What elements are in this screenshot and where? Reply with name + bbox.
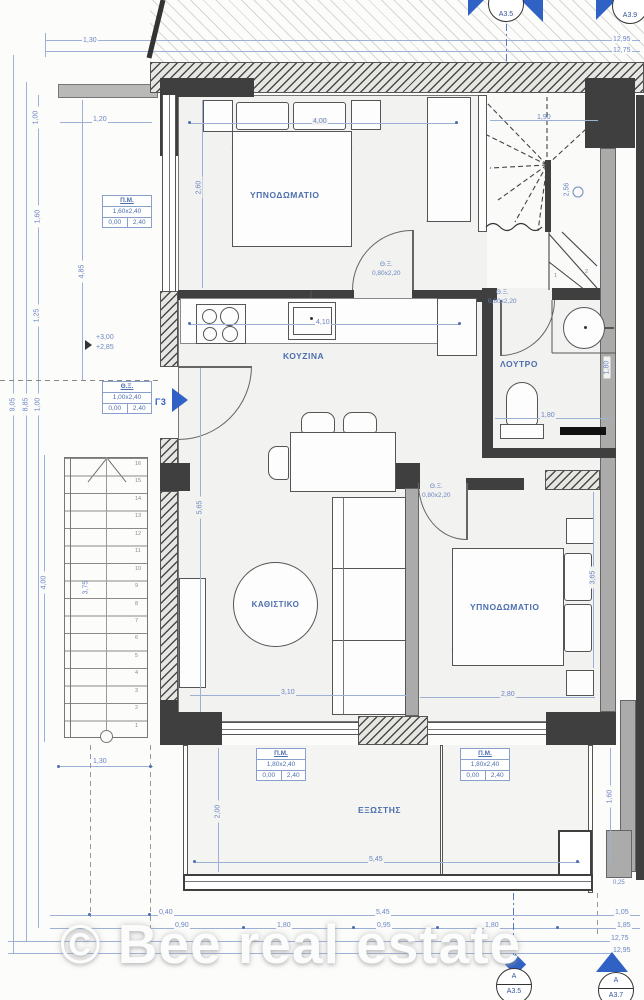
room-label-bedroom1: ΥΠΝΟΔΩΜΑΤΙΟ: [250, 190, 319, 200]
stair-void: [427, 97, 471, 222]
dim-pier: 0,25: [612, 880, 626, 886]
stair-step-number: 14: [135, 491, 141, 508]
dim-bedroom2-width: 2,80: [500, 691, 516, 698]
dim-ext-stair-total: 4,00: [41, 572, 48, 594]
balcony-door-left: [222, 722, 358, 735]
dim-dot: [458, 322, 461, 325]
chair: [343, 412, 377, 433]
room-label-bathroom: ΛΟΥΤΡΟ: [500, 359, 538, 369]
dim-dot: [57, 765, 60, 768]
stair-step-numbers: 16151413121110987654321: [135, 456, 141, 735]
spec-height: 2,40: [127, 218, 152, 228]
stair-step-number: 5: [135, 648, 141, 665]
stair-step-number: 9: [135, 578, 141, 595]
spec-size: 1,00x2,40: [103, 393, 151, 404]
dim-top-left: 1,20: [92, 116, 108, 123]
door-code: Θ.Ξ.: [488, 289, 517, 298]
exterior-wall-left: [160, 291, 178, 367]
dim-balcony-width: 5,45: [368, 856, 384, 863]
chair: [301, 412, 335, 433]
dim-ext-line: [90, 745, 91, 917]
stair-step-number: 4: [135, 665, 141, 682]
section-arrow-icon: [468, 0, 484, 16]
balcony-divider: [440, 745, 443, 876]
dim-left: 4,85: [79, 261, 86, 283]
watermark: © Bee real estate: [60, 912, 521, 976]
dining-table: [290, 432, 396, 492]
corner-column: [160, 700, 178, 745]
wall-column: [396, 463, 420, 489]
window-spec-box: Π.Μ. 1,60x2,40 0,002,40: [102, 195, 152, 228]
room-label-bedroom2: ΥΠΝΟΔΩΜΑΤΙΟ: [470, 602, 539, 612]
wall-bedroom2-top: [466, 478, 524, 490]
dim-left: 1,25: [34, 305, 41, 327]
dim-left: 1,60: [35, 206, 42, 228]
section-arrow-icon: [596, 952, 628, 972]
dim-bedroom1-height: 2,60: [196, 177, 203, 199]
dim-stairwell-width: 1,90: [536, 114, 552, 121]
bedroom1-window: [162, 95, 176, 291]
tv-bench: [179, 578, 206, 688]
burner-icon: [203, 327, 217, 341]
toilet-bowl: [506, 382, 538, 426]
wall-column: [160, 463, 190, 491]
dim-bottom-total: 12,75: [610, 935, 630, 942]
spec-size: 1,60x2,40: [103, 207, 151, 218]
burner-icon: [202, 309, 217, 324]
spec-title: Θ.Ξ.: [103, 382, 151, 393]
shower-channel: [560, 427, 606, 435]
nightstand: [566, 670, 594, 696]
entrance-door-label: Γ3: [155, 397, 166, 407]
dim-balcony-height: 2,00: [215, 801, 222, 823]
spec-size: 1,80x2,40: [461, 760, 509, 771]
wall-bath-top: [552, 288, 600, 300]
stairwell-floor: [487, 95, 600, 288]
dim-roof-offset: 1,30: [82, 37, 98, 44]
toilet-cistern: [500, 424, 544, 439]
dim-line: [190, 695, 408, 696]
window-spec-box: Π.Μ. 1,80x2,40 0,002,40: [256, 748, 306, 781]
wall-pier: [545, 470, 600, 490]
spec-height: 2,40: [485, 771, 510, 781]
section-trace-line: [0, 380, 162, 381]
dim-left-total: 8,85: [23, 394, 30, 416]
dim-ext-stair-width: 1,30: [92, 758, 108, 765]
basin-drain-icon: [584, 326, 587, 329]
stair-step-number: 2: [135, 700, 141, 717]
spec-sill: 0,00: [103, 404, 127, 414]
dim-dot: [455, 121, 458, 124]
dim-living-height: 5,65: [197, 497, 204, 519]
room-label-balcony: ΕΞΩΣΤΗΣ: [358, 805, 401, 815]
balcony-door-right: [428, 722, 546, 735]
dim-ext-line: [45, 33, 46, 57]
stair-step-number: 13: [135, 508, 141, 525]
wall-living-bedroom2: [405, 488, 419, 716]
canopy-slab: [58, 84, 158, 98]
stair-step-number: 6: [135, 630, 141, 647]
dim-dot: [193, 860, 196, 863]
floor-plan-canvas: 1,30 12,95 12,75 A3.5 A3.9: [0, 0, 644, 1000]
door-label-bedroom2: Θ.Ξ. 0,80x2,20: [422, 483, 451, 501]
dim-line: [200, 368, 201, 712]
dim-line: [58, 766, 153, 767]
dim-dot: [556, 926, 559, 929]
door-code: Θ.Ξ.: [422, 483, 451, 492]
dim-dot: [149, 765, 152, 768]
door-leaf: [412, 230, 414, 290]
nightstand: [203, 100, 233, 132]
stair-step-number: 15: [135, 473, 141, 490]
dim-line-top-2: [45, 51, 640, 52]
level-flag-icon: [85, 340, 92, 350]
room-label-kitchen: ΚΟΥΖΙΝΑ: [283, 351, 324, 361]
chair: [268, 446, 289, 480]
balcony-rail-left: [183, 745, 188, 890]
window-spec-box: Π.Μ. 1,80x2,40 0,002,40: [460, 748, 510, 781]
pillow: [564, 553, 592, 601]
door-size: 0,80x2,20: [372, 270, 401, 279]
entrance-arrow-icon: [172, 388, 188, 412]
dim-living-width: 3,10: [280, 689, 296, 696]
door-label-bathroom: Θ.Ξ. 0,80x2,20: [488, 289, 517, 307]
dim-bathroom-width: 1,80: [540, 412, 556, 419]
bed-bedroom1: [232, 131, 352, 247]
dim-bottom: 1,85: [616, 922, 632, 929]
stairwell-column: [585, 78, 635, 148]
dim-balcony-right: 1,60: [607, 786, 614, 808]
stair-step-number: 1: [553, 274, 558, 280]
faucet-icon: [310, 317, 313, 320]
roof-hatch-area: [150, 0, 644, 62]
stair-step-number: 7: [135, 613, 141, 630]
stair-step-number: 2: [584, 270, 589, 276]
door-label-bedroom1: Θ.Ξ. 0,80x2,20: [372, 261, 401, 279]
dim-total-top-1: 12,95: [612, 36, 632, 43]
dim-bathroom-height: 1,80: [604, 357, 611, 379]
dim-line-top-1: [45, 40, 640, 41]
burner-icon: [222, 326, 238, 342]
dim-left-total: 9,05: [10, 394, 17, 416]
stair-step-number: 10: [135, 561, 141, 578]
parapet-line: [185, 881, 591, 882]
door-spec-box: Θ.Ξ. 1,00x2,40 0,002,40: [102, 381, 152, 414]
dim-chain-line: [26, 82, 27, 941]
dim-dot: [576, 860, 579, 863]
corner-column: [178, 712, 222, 745]
dim-dot: [188, 322, 191, 325]
pillow: [293, 102, 346, 130]
dim-ext-stair-run: 3,75: [83, 577, 90, 599]
stair-newel-wall: [545, 160, 551, 232]
sofa-back-line: [343, 498, 344, 714]
pillow: [564, 604, 592, 652]
dim-left-total: 1,00: [35, 394, 42, 416]
door-leaf: [178, 366, 252, 368]
section-marker-bottom-right: A A3.7: [598, 972, 634, 1000]
corner-column: [546, 712, 616, 745]
door-leaf: [500, 300, 502, 356]
spec-size: 1,80x2,40: [257, 760, 305, 771]
stair-stringer-line: [70, 457, 71, 738]
exterior-wall-left: [160, 438, 178, 466]
door-size: 0,80x2,20: [422, 492, 451, 501]
stair-step-number: 11: [135, 543, 141, 560]
spec-sill: 0,00: [461, 771, 485, 781]
spec-sill: 0,00: [257, 771, 281, 781]
spec-sill: 0,00: [103, 218, 127, 228]
wall-bath-bottom: [482, 448, 616, 458]
level-lower: +2,85: [95, 344, 115, 351]
dim-kitchen-width: 4,10: [315, 319, 331, 326]
dim-chain-line: [13, 55, 14, 953]
coffee-table: ΚΑΘΙΣΤΙΚΟ: [233, 562, 318, 647]
exterior-wall-left: [160, 491, 178, 703]
dim-bedroom1-width: 4,00: [312, 118, 328, 125]
spec-title: Π.Μ.: [461, 749, 509, 760]
door-size: 0,80x2,20: [488, 298, 517, 307]
dim-ext-line: [150, 745, 151, 930]
stair-centerline: [106, 457, 107, 738]
dim-line: [44, 455, 45, 742]
balcony-parapet: [183, 874, 593, 891]
room-label-living: ΚΑΘΙΣΤΙΚΟ: [252, 600, 300, 609]
stair-step-number: 1: [135, 718, 141, 735]
fridge: [437, 298, 477, 356]
marker-letter: A: [599, 973, 633, 989]
door-leaf: [466, 483, 468, 540]
spec-title: Π.Μ.: [257, 749, 305, 760]
wall-pier: [358, 716, 428, 745]
marker-code: A3.7: [599, 989, 633, 1000]
nightstand: [351, 100, 381, 130]
dim-total-top-2: 12,75: [612, 47, 632, 54]
spec-height: 2,40: [127, 404, 152, 414]
dim-left: 1,00: [33, 107, 40, 129]
sofa: [332, 497, 406, 715]
stair-step-number: 3: [135, 683, 141, 700]
spec-height: 2,40: [281, 771, 306, 781]
dim-bottom: 1,05: [614, 909, 630, 916]
nightstand: [566, 518, 594, 544]
stair-step-number: 16: [135, 456, 141, 473]
marker-code: A3.5: [497, 985, 531, 999]
dim-stairwell-height: 2,56: [564, 179, 571, 201]
level-upper: +3,00: [95, 334, 115, 341]
dim-bedroom2-height: 3,65: [590, 567, 597, 589]
dim-line: [195, 862, 580, 863]
neighbor-wall: [636, 95, 644, 880]
wall-bath-left: [482, 300, 493, 450]
stair-start-circle: [100, 730, 113, 743]
dim-line: [82, 100, 83, 380]
stair-step-number: 8: [135, 596, 141, 613]
door-code: Θ.Ξ.: [372, 261, 401, 270]
section-arrow-icon: [521, 0, 543, 22]
stair-step-number: 12: [135, 526, 141, 543]
stairwell-wall: [478, 95, 487, 232]
pillow: [236, 102, 289, 130]
spec-title: Π.Μ.: [103, 196, 151, 207]
dim-dot: [188, 121, 191, 124]
